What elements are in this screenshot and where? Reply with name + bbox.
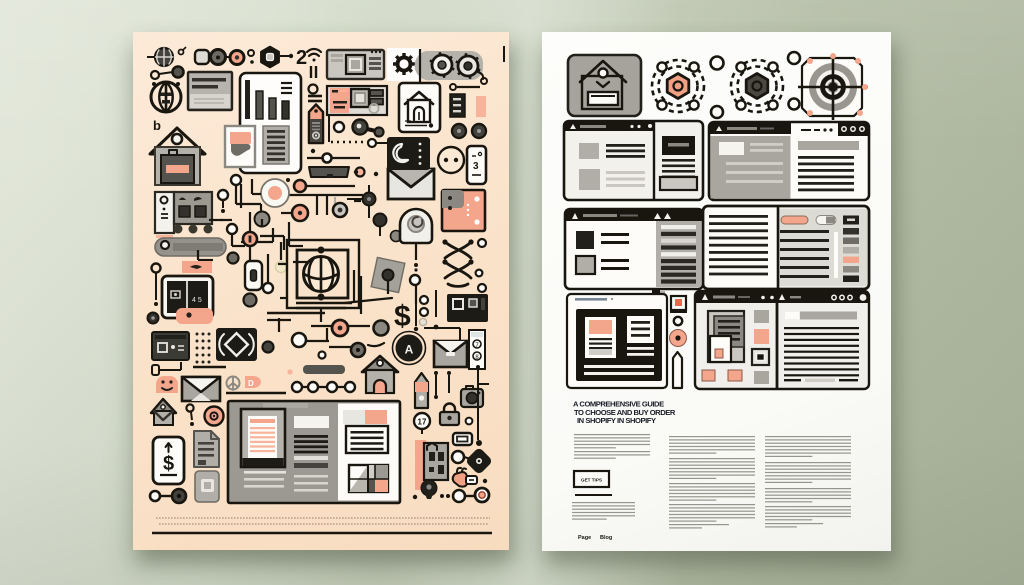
svg-text:GET TIPS: GET TIPS bbox=[581, 478, 602, 483]
svg-text:IN SHOPIFY IN SHOPIFY: IN SHOPIFY IN SHOPIFY bbox=[577, 416, 656, 425]
svg-text:b: b bbox=[153, 118, 161, 133]
svg-text:Page: Page bbox=[578, 535, 591, 541]
svg-text:D: D bbox=[248, 379, 254, 388]
svg-text:Blog: Blog bbox=[600, 535, 612, 541]
svg-text:2: 2 bbox=[296, 47, 307, 69]
svg-text:A: A bbox=[405, 343, 414, 357]
svg-text:3: 3 bbox=[473, 161, 479, 172]
svg-text:$: $ bbox=[394, 300, 411, 333]
svg-text:17: 17 bbox=[418, 418, 427, 427]
svg-text:4 5: 4 5 bbox=[192, 297, 202, 304]
svg-text:$: $ bbox=[163, 453, 174, 475]
